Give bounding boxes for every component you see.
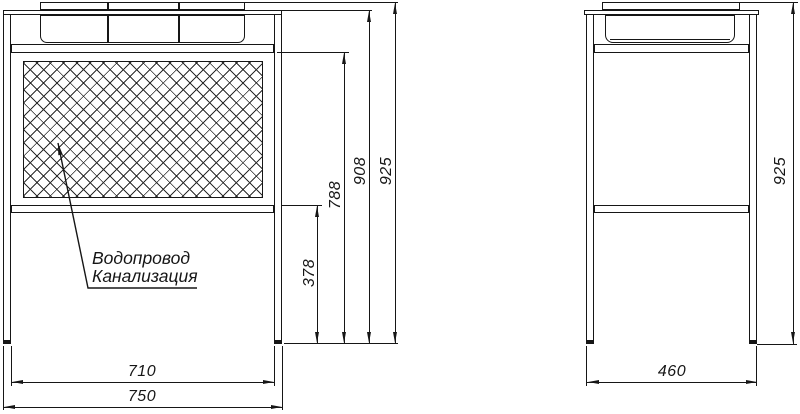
extension-line-925-top xyxy=(245,2,398,3)
plumbing-annotation: Водопровод Канализация xyxy=(92,250,198,285)
arrow-right-icon xyxy=(746,380,757,384)
side-right-leg xyxy=(749,14,757,343)
arrow-up-icon xyxy=(315,206,319,217)
arrow-up-icon xyxy=(367,11,371,22)
front-upper-crossbar xyxy=(11,44,274,53)
side-right-foot xyxy=(749,340,757,344)
dim-line-925-side xyxy=(793,3,794,344)
arrow-left-icon xyxy=(588,380,599,384)
dim-line-460 xyxy=(587,382,757,383)
mesh-panel xyxy=(23,61,263,198)
dim-label-460: 460 xyxy=(658,363,686,381)
arrow-down-icon xyxy=(393,332,397,343)
dim-label-788: 788 xyxy=(327,181,345,209)
front-top-rail xyxy=(3,10,282,15)
arrow-left-icon xyxy=(4,405,15,409)
front-left-leg xyxy=(3,14,11,343)
extension-line-710-right xyxy=(274,346,275,386)
arrow-right-icon xyxy=(271,405,282,409)
side-left-leg xyxy=(586,14,594,343)
arrow-down-icon xyxy=(367,332,371,343)
extension-line-bottom xyxy=(284,343,398,344)
arrow-down-icon xyxy=(342,332,346,343)
dim-line-710 xyxy=(11,382,274,383)
arrow-right-icon xyxy=(263,380,274,384)
side-left-foot xyxy=(586,340,594,344)
front-left-foot xyxy=(3,340,11,344)
side-top-rail xyxy=(584,10,759,15)
extension-line-925s-top xyxy=(740,2,798,3)
front-right-leg xyxy=(274,14,282,343)
extension-line-788-top xyxy=(277,52,349,53)
arrow-up-icon xyxy=(342,53,346,64)
arrow-up-icon xyxy=(791,3,795,14)
side-upper-crossbar xyxy=(594,44,749,53)
dim-label-925-front: 925 xyxy=(378,157,396,185)
extension-line-750-right xyxy=(282,346,283,410)
front-basin-body xyxy=(40,15,245,44)
side-basin-rim xyxy=(602,2,740,10)
dim-label-378: 378 xyxy=(301,259,319,287)
arrow-up-icon xyxy=(393,3,397,14)
extension-line-925s-bottom xyxy=(757,344,797,345)
front-basin-rim-divider xyxy=(178,2,180,10)
dim-label-710: 710 xyxy=(128,363,156,381)
extension-line-750-left xyxy=(3,346,4,410)
side-basin-inner-line xyxy=(610,39,730,40)
dim-label-908: 908 xyxy=(352,157,370,185)
side-mid-crossbar xyxy=(594,205,749,213)
technical-drawing-canvas: 378 788 908 925 710 750 Водопровод Канал… xyxy=(0,0,800,414)
front-basin-rim-divider xyxy=(107,2,109,10)
annotation-line-2: Канализация xyxy=(92,268,198,286)
arrow-left-icon xyxy=(12,380,23,384)
front-basin-divider xyxy=(107,15,109,42)
dim-label-925-side: 925 xyxy=(772,157,790,185)
front-basin-rim xyxy=(40,2,245,10)
extension-line-908-top xyxy=(282,10,372,11)
arrow-down-icon xyxy=(315,332,319,343)
front-right-foot xyxy=(274,340,282,344)
dim-line-750 xyxy=(3,407,282,408)
arrow-down-icon xyxy=(791,332,795,343)
dim-label-750: 750 xyxy=(128,388,156,406)
annotation-line-1: Водопровод xyxy=(92,250,198,268)
front-basin-divider xyxy=(178,15,180,42)
front-mid-crossbar xyxy=(11,205,274,213)
